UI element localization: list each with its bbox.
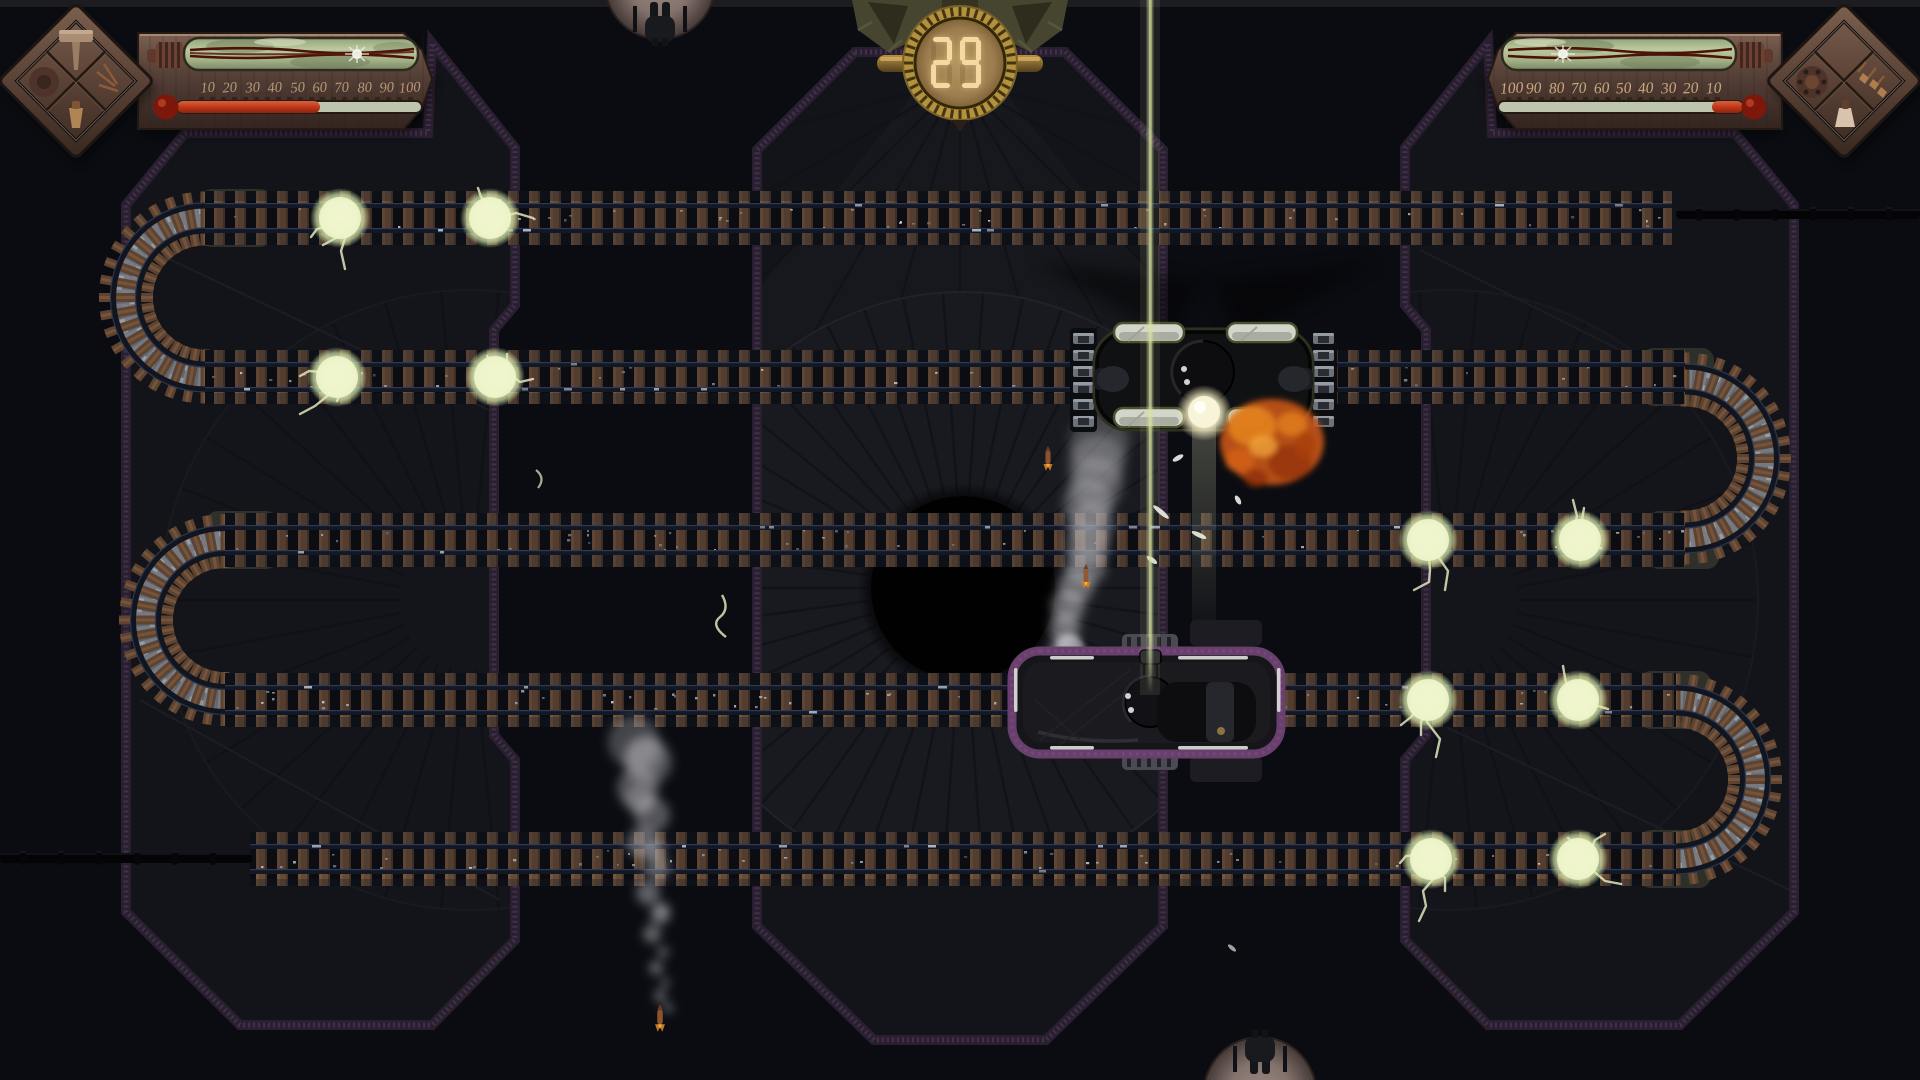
svg-text:90: 90 [1525, 79, 1542, 97]
svg-text:90: 90 [379, 79, 395, 96]
svg-text:30: 30 [1659, 79, 1677, 97]
svg-text:30: 30 [244, 79, 261, 96]
svg-text:50: 50 [1615, 79, 1632, 97]
svg-text:80: 80 [357, 79, 373, 96]
svg-text:50: 50 [290, 79, 306, 96]
svg-text:70: 70 [334, 79, 350, 96]
svg-text:20: 20 [222, 79, 238, 96]
svg-text:100: 100 [1499, 79, 1524, 98]
svg-text:80: 80 [1548, 79, 1565, 97]
svg-text:60: 60 [1593, 79, 1610, 97]
svg-text:10: 10 [200, 79, 216, 96]
svg-text:60: 60 [312, 79, 328, 96]
svg-text:70: 70 [1570, 79, 1587, 97]
svg-text:40: 40 [267, 79, 283, 96]
svg-text:10: 10 [1705, 79, 1722, 97]
svg-text:100: 100 [398, 79, 422, 97]
svg-text:20: 20 [1682, 79, 1699, 97]
svg-text:40: 40 [1637, 79, 1654, 97]
